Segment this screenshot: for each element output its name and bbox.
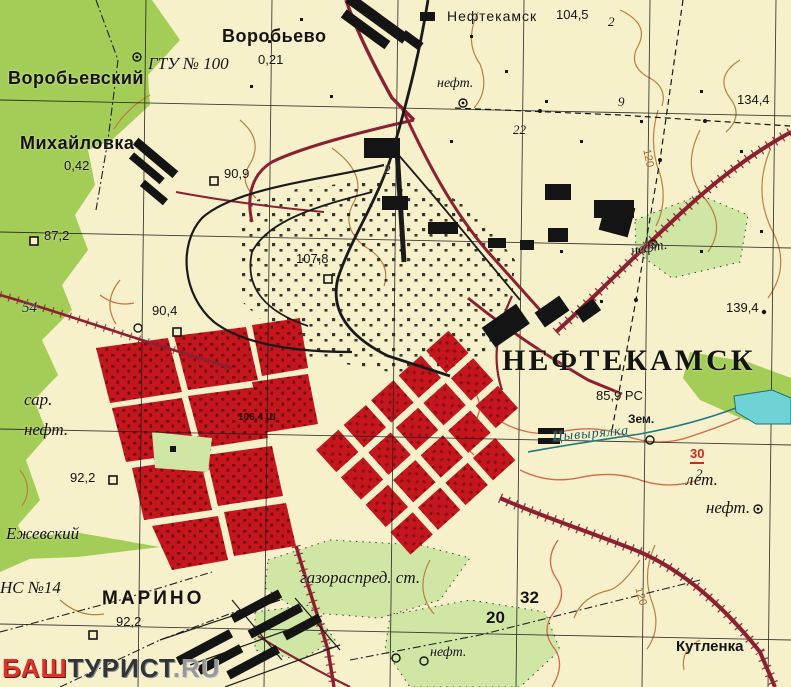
map-graphics (0, 0, 791, 687)
topographic-map: ВоробьевскийВоробьево0,21ГТУ № 100Нефтек… (0, 0, 791, 687)
